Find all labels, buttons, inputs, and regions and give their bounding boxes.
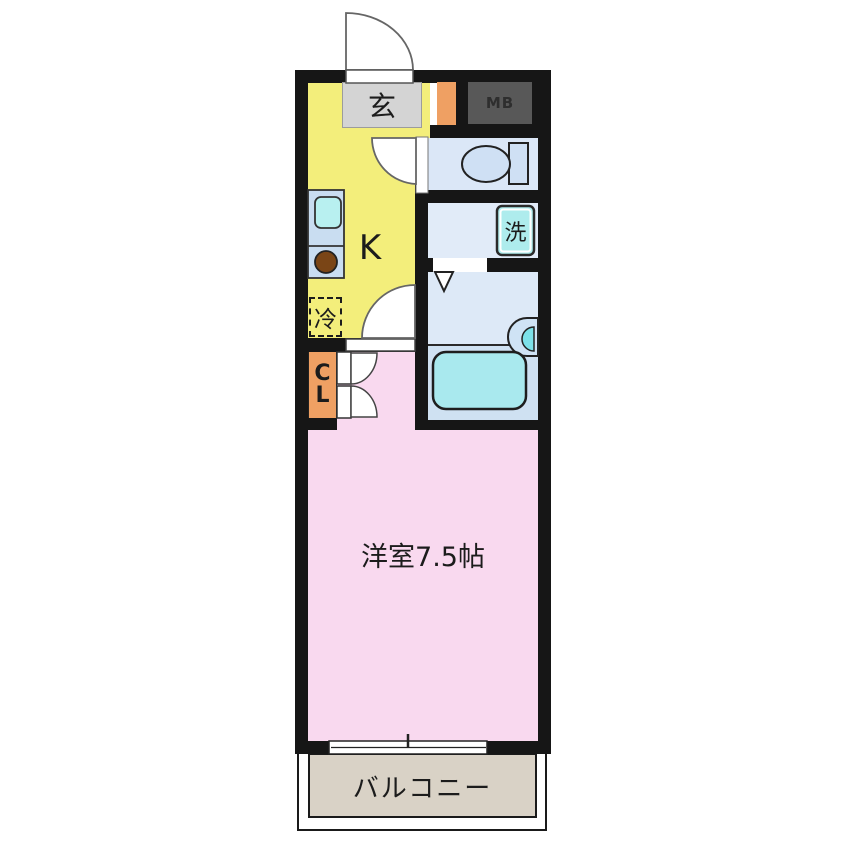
meter-box: MB bbox=[468, 82, 532, 124]
wall-closet-bottom bbox=[308, 418, 337, 430]
toilet-room bbox=[428, 138, 538, 190]
washer-label: 洗 bbox=[497, 206, 534, 255]
entrance-side-panel bbox=[430, 83, 437, 125]
closet: C L bbox=[308, 350, 337, 420]
entrance-accent-strip bbox=[437, 82, 456, 125]
closet-label-line2: L bbox=[315, 385, 329, 407]
floor-plan: MB C L bbox=[0, 0, 846, 846]
bathroom-wet-area bbox=[428, 345, 538, 420]
western-room bbox=[308, 430, 538, 741]
meter-box-label: MB bbox=[486, 94, 514, 112]
balcony-label: バルコニー bbox=[308, 768, 537, 804]
wall-center-divider bbox=[415, 138, 428, 430]
refrigerator-label: 冷 bbox=[309, 297, 342, 337]
western-room-label: 洋室7.5帖 bbox=[308, 536, 538, 572]
wall-bathroom-room bbox=[415, 420, 538, 430]
entrance-label: 玄 bbox=[342, 82, 422, 128]
kitchen-label: K bbox=[350, 228, 390, 268]
wall-kitchen-room bbox=[308, 338, 415, 352]
wall-washroom-bathroom bbox=[428, 258, 538, 272]
wall-toilet-washroom bbox=[428, 190, 538, 203]
closet-label-line1: C bbox=[314, 363, 330, 385]
